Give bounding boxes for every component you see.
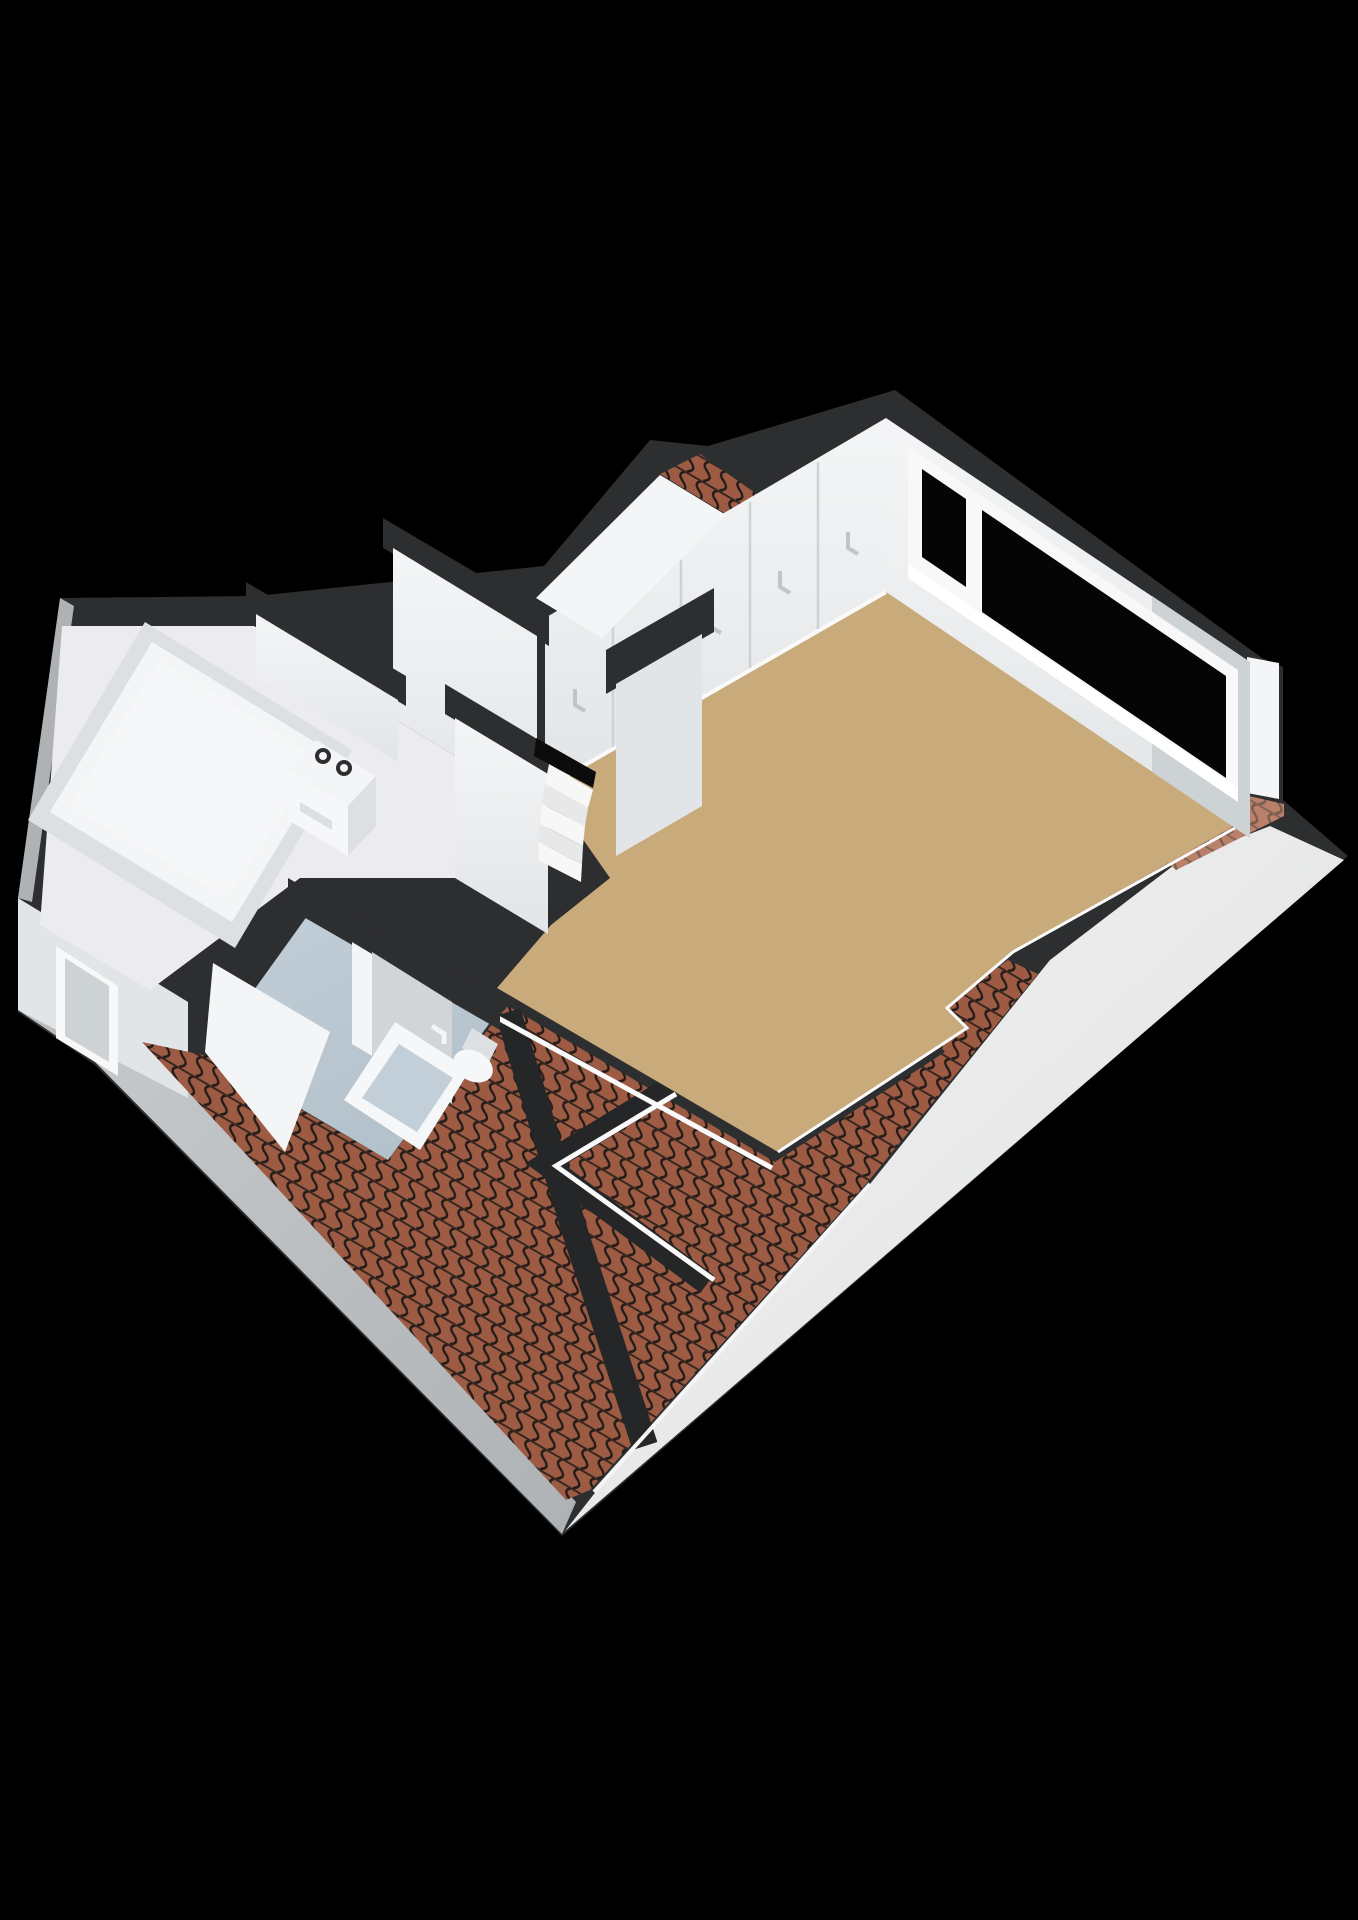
screenshot-canvas: 3D attic floor plan render	[0, 0, 1358, 1920]
washer-knob-2-center	[340, 764, 348, 772]
bathroom-door-edge	[352, 942, 372, 1056]
washer-knob-1-center	[319, 752, 327, 760]
floorplan-3d-render	[0, 0, 1358, 1920]
dormer-corner-post	[1247, 657, 1279, 799]
